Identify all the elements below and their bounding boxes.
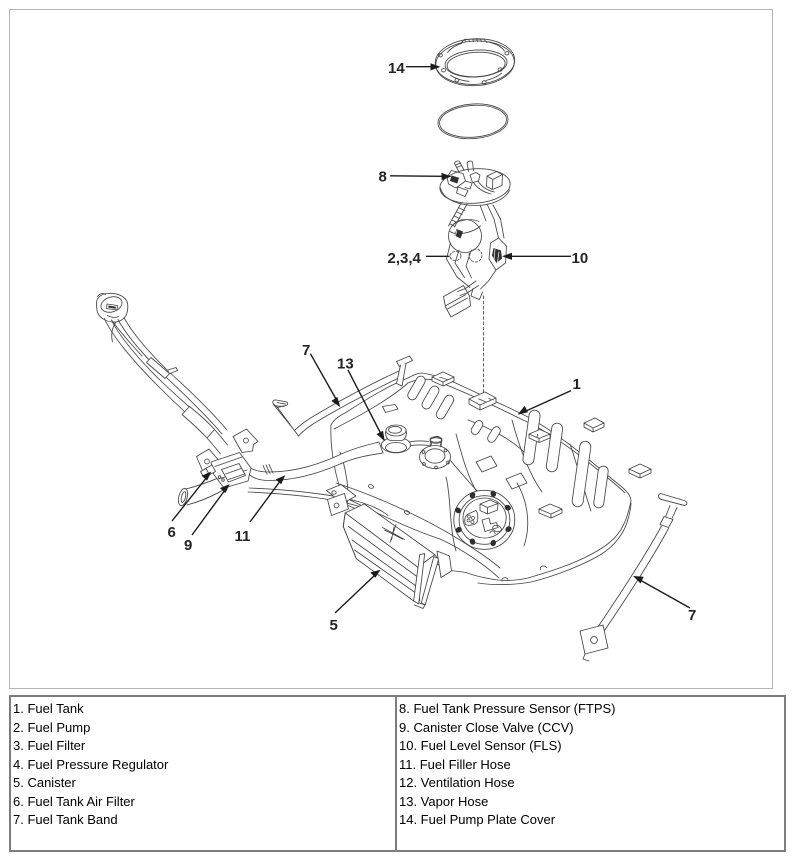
svg-text:9: 9 [184,537,192,554]
svg-text:14: 14 [388,60,405,77]
svg-text:5: 5 [330,617,338,634]
svg-text:8: 8 [379,169,387,186]
svg-text:7: 7 [302,342,310,359]
svg-text:13: 13 [337,356,354,373]
svg-text:7: 7 [688,607,696,624]
svg-text:2,3,4: 2,3,4 [388,250,422,267]
svg-text:11: 11 [235,528,251,545]
svg-text:1: 1 [573,376,581,393]
svg-text:10: 10 [572,250,589,267]
svg-text:6: 6 [168,524,176,541]
